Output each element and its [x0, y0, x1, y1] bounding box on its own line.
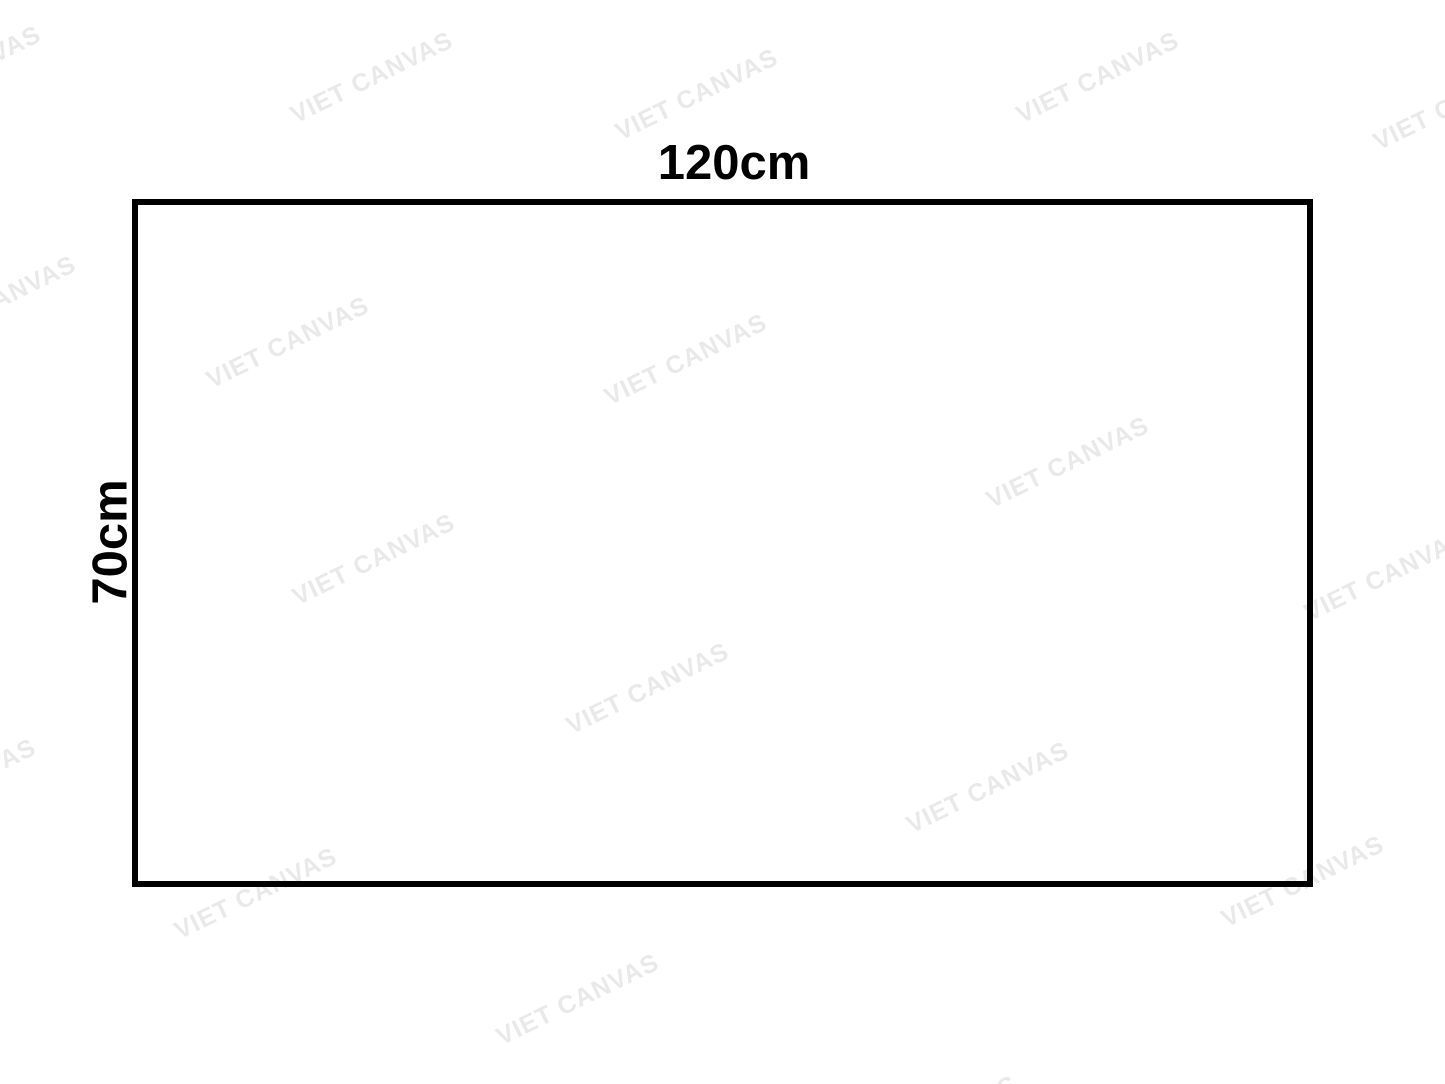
watermark-text: VIET CANVAS	[850, 1070, 1022, 1084]
watermark-text: VIET CANVAS	[0, 20, 46, 124]
height-dimension-label: 70cm	[87, 479, 136, 604]
watermark-text: VIET CANVAS	[0, 250, 81, 354]
watermark-text: VIET CANVAS	[1012, 26, 1184, 130]
watermark-text: VIET CANVAS	[1369, 53, 1445, 157]
watermark-text: VIET CANVAS	[611, 43, 783, 147]
watermark-text: VIET CANVAS	[492, 948, 664, 1052]
watermark-text: VIET CANVAS	[0, 733, 41, 837]
rectangle-outline	[132, 199, 1313, 887]
product-dimension-diagram: VIET CANVASVIET CANVASVIET CANVASVIET CA…	[0, 0, 1445, 1084]
watermark-text: VIET CANVAS	[1300, 524, 1445, 628]
watermark-text: VIET CANVAS	[286, 26, 458, 130]
width-dimension-label: 120cm	[658, 139, 811, 188]
